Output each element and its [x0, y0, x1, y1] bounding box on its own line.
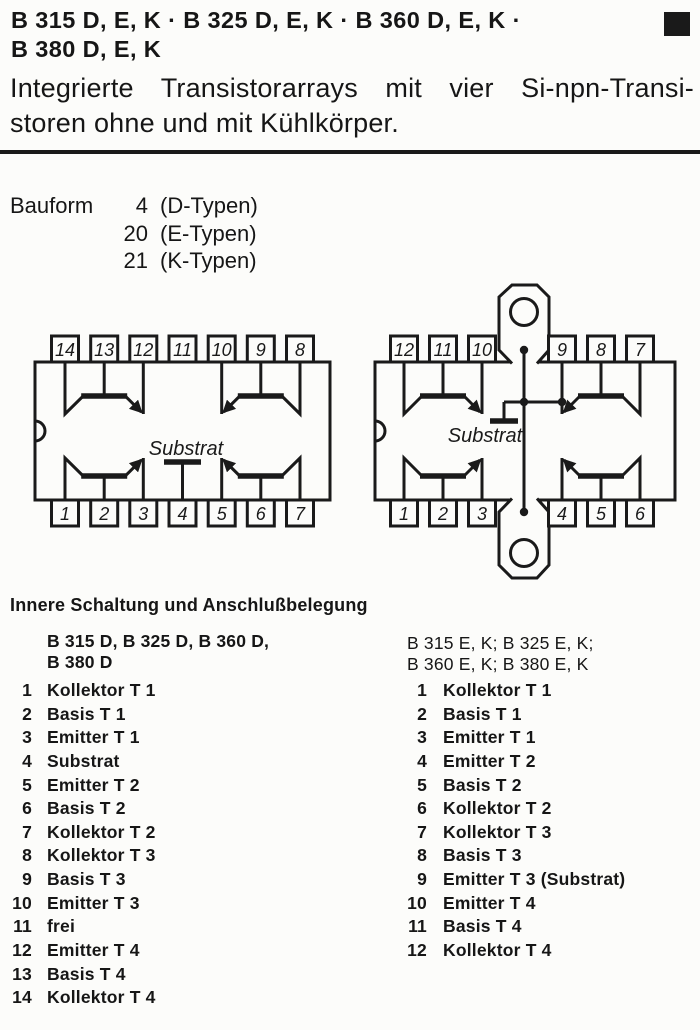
pin-row-label: Basis T 2	[47, 798, 126, 819]
pin-row: 4Substrat	[8, 751, 348, 775]
pin-row-label: frei	[47, 916, 75, 937]
pin-row: 11frei	[8, 916, 348, 940]
pin-number: 4	[177, 504, 187, 524]
pin-row: 9Emitter T 3 (Substrat)	[405, 869, 697, 893]
divider-rule	[0, 150, 700, 154]
pin-row-number: 7	[8, 822, 32, 843]
title-line1: B 315 D, E, K · B 325 D, E, K · B 360 D,…	[11, 6, 671, 35]
pin-row-label: Emitter T 2	[443, 751, 536, 772]
subtitle-line2: storen ohne und mit Kühlkörper.	[10, 106, 694, 141]
pin-number: 11	[173, 340, 192, 360]
pin-row-number: 4	[405, 751, 427, 772]
subtitle-line1: Integrierte Transistorarrays mit vier Si…	[10, 71, 694, 106]
pin-row-number: 3	[405, 727, 427, 748]
pin-row-label: Kollektor T 3	[47, 845, 156, 866]
bauform-number: 21	[115, 247, 148, 275]
pin-row-number: 13	[8, 964, 32, 985]
package-diagrams: Substrat1413121110981234567 Substrat1211…	[0, 280, 700, 590]
pin-row-label: Basis T 3	[47, 869, 126, 890]
pin-number: 13	[94, 340, 114, 360]
bauform-label: Bauform	[10, 192, 93, 220]
pin-number: 10	[472, 340, 492, 360]
pin-number: 6	[256, 504, 267, 524]
pin-row-number: 2	[8, 704, 32, 725]
pin-number: 9	[256, 340, 266, 360]
bauform-section: Bauform 4(D-Typen)20(E-Typen)21(K-Typen)	[10, 192, 258, 275]
bauform-row: 21(K-Typen)	[10, 247, 258, 275]
pin-row-label: Substrat	[47, 751, 120, 772]
pin-row: 9Basis T 3	[8, 869, 348, 893]
pinout-right-header: B 315 E, K; B 325 E, K; B 360 E, K; B 38…	[407, 633, 594, 674]
pin-number: 14	[55, 340, 75, 360]
corner-square-icon	[664, 12, 690, 36]
pin-row-number: 11	[405, 916, 427, 937]
pin-number: 3	[477, 504, 487, 524]
pin-row-number: 5	[405, 775, 427, 796]
pin-row-label: Emitter T 3	[47, 893, 140, 914]
pin-row-number: 9	[405, 869, 427, 890]
pin-row: 7Kollektor T 3	[405, 822, 697, 846]
substrate-label: Substrat	[448, 425, 524, 447]
pin-row: 6Kollektor T 2	[405, 798, 697, 822]
pin-number: 7	[295, 504, 306, 524]
pin-row-number: 7	[405, 822, 427, 843]
pin-number: 1	[60, 504, 70, 524]
pin-number: 6	[635, 504, 646, 524]
pin-row: 8Kollektor T 3	[8, 845, 348, 869]
pin-row-number: 14	[8, 987, 32, 1008]
pin-row-number: 12	[405, 940, 427, 961]
pin-row-number: 8	[405, 845, 427, 866]
pin-row-label: Kollektor T 2	[443, 798, 552, 819]
pin-row: 5Basis T 2	[405, 775, 697, 799]
dip12-diagram: Substrat121110987123456	[375, 285, 675, 578]
pinout-list-left: 1Kollektor T 12Basis T 13Emitter T 14Sub…	[8, 680, 348, 1011]
bauform-type: (D-Typen)	[160, 193, 258, 218]
pin-row-number: 6	[8, 798, 32, 819]
pin-number: 7	[635, 340, 646, 360]
pin-row-label: Emitter T 3 (Substrat)	[443, 869, 625, 890]
pin-row: 7Kollektor T 2	[8, 822, 348, 846]
pin-number: 5	[217, 504, 228, 524]
pin-row-number: 2	[405, 704, 427, 725]
bauform-type: (K-Typen)	[160, 248, 257, 273]
title-line2: B 380 D, E, K	[11, 35, 671, 64]
pin-row-label: Kollektor T 4	[47, 987, 156, 1008]
pin-row-number: 3	[8, 727, 32, 748]
pin-row-number: 9	[8, 869, 32, 890]
bauform-number: 20	[115, 220, 148, 248]
pin-row-label: Basis T 2	[443, 775, 522, 796]
pin-number: 2	[437, 504, 448, 524]
substrate-label: Substrat	[149, 438, 225, 460]
pin-row: 3Emitter T 1	[405, 727, 697, 751]
pin-row-label: Emitter T 4	[443, 893, 536, 914]
pin-row-label: Basis T 4	[443, 916, 522, 937]
pin-number: 10	[212, 340, 232, 360]
pin-row-label: Basis T 4	[47, 964, 126, 985]
pinout-left-header-line1: B 315 D, B 325 D, B 360 D,	[47, 631, 269, 652]
page-subtitle: Integrierte Transistorarrays mit vier Si…	[10, 71, 694, 140]
pin-row: 5Emitter T 2	[8, 775, 348, 799]
datasheet-page: B 315 D, E, K · B 325 D, E, K · B 360 D,…	[0, 0, 700, 1030]
pin-row: 8Basis T 3	[405, 845, 697, 869]
pin-number: 8	[596, 340, 606, 360]
pin-number: 8	[295, 340, 305, 360]
pin-row-number: 6	[405, 798, 427, 819]
pin-number: 4	[557, 504, 567, 524]
pin-row-label: Basis T 1	[443, 704, 522, 725]
pin-row: 3Emitter T 1	[8, 727, 348, 751]
pin-number: 3	[138, 504, 148, 524]
pin-row: 1Kollektor T 1	[8, 680, 348, 704]
pinout-left-header: B 315 D, B 325 D, B 360 D, B 380 D	[47, 631, 269, 672]
pin-number: 11	[434, 340, 453, 360]
pinout-list-right: 1Kollektor T 12Basis T 13Emitter T 14Emi…	[405, 680, 697, 964]
pin-number: 12	[133, 340, 153, 360]
dip14-diagram: Substrat1413121110981234567	[35, 336, 330, 526]
pin-row-label: Kollektor T 4	[443, 940, 552, 961]
pin-row-number: 11	[8, 916, 32, 937]
pin-row-label: Kollektor T 3	[443, 822, 552, 843]
pin-row-label: Kollektor T 1	[443, 680, 552, 701]
pinout-right-header-line2: B 360 E, K; B 380 E, K	[407, 654, 594, 675]
pin-number: 5	[596, 504, 607, 524]
pin-row-label: Basis T 1	[47, 704, 126, 725]
pin-number: 2	[98, 504, 109, 524]
pin-row-label: Emitter T 2	[47, 775, 140, 796]
pin-row-label: Emitter T 1	[47, 727, 140, 748]
pin-row-label: Kollektor T 2	[47, 822, 156, 843]
pin-row: 13Basis T 4	[8, 964, 348, 988]
bauform-row: 20(E-Typen)	[10, 220, 258, 248]
pin-row-number: 10	[8, 893, 32, 914]
pin-row-number: 4	[8, 751, 32, 772]
pinout-heading: Innere Schaltung und Anschlußbelegung	[10, 595, 368, 616]
pin-row-label: Basis T 3	[443, 845, 522, 866]
pin-row-label: Emitter T 1	[443, 727, 536, 748]
pin-row-number: 1	[8, 680, 32, 701]
pin-row: 10Emitter T 3	[8, 893, 348, 917]
pin-row: 10Emitter T 4	[405, 893, 697, 917]
page-title: B 315 D, E, K · B 325 D, E, K · B 360 D,…	[11, 6, 671, 64]
pin-number: 9	[557, 340, 567, 360]
pin-row: 4Emitter T 2	[405, 751, 697, 775]
pin-row: 1Kollektor T 1	[405, 680, 697, 704]
pin-number: 1	[399, 504, 409, 524]
pinout-left-header-line2: B 380 D	[47, 652, 269, 673]
pin-row-number: 1	[405, 680, 427, 701]
pin-row: 6Basis T 2	[8, 798, 348, 822]
pin-row: 12Emitter T 4	[8, 940, 348, 964]
pin-row: 2Basis T 1	[405, 704, 697, 728]
pin-row: 14Kollektor T 4	[8, 987, 348, 1011]
pin-row-number: 8	[8, 845, 32, 866]
bauform-number: 4	[115, 192, 148, 220]
pin-row: 12Kollektor T 4	[405, 940, 697, 964]
pin-row: 2Basis T 1	[8, 704, 348, 728]
pin-row-number: 12	[8, 940, 32, 961]
pinout-right-header-line1: B 315 E, K; B 325 E, K;	[407, 633, 594, 654]
pin-row-label: Kollektor T 1	[47, 680, 156, 701]
pin-row: 11Basis T 4	[405, 916, 697, 940]
bauform-type: (E-Typen)	[160, 221, 257, 246]
pin-row-number: 10	[405, 893, 427, 914]
pin-number: 12	[394, 340, 414, 360]
pin-row-number: 5	[8, 775, 32, 796]
pin-row-label: Emitter T 4	[47, 940, 140, 961]
